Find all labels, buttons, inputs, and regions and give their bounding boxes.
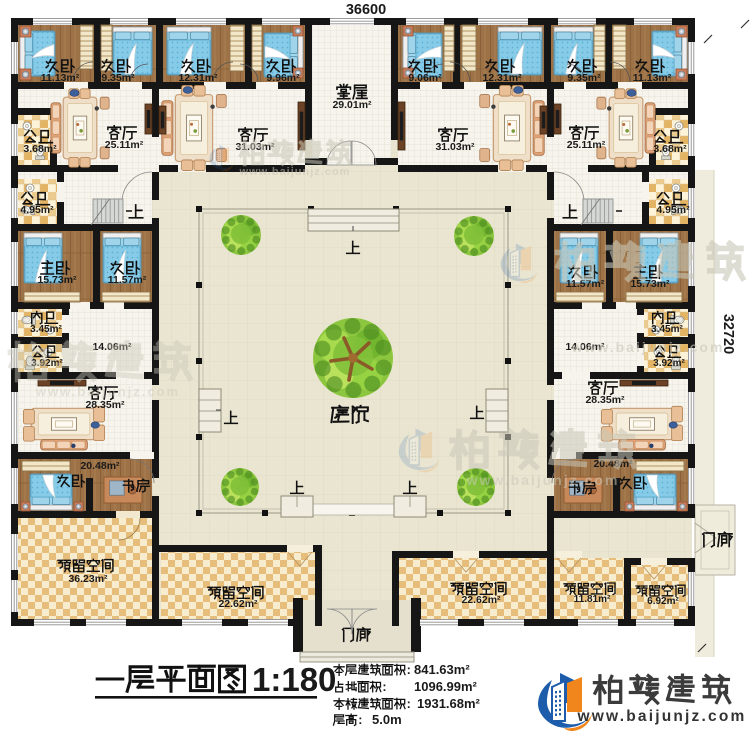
svg-text:31.03m²: 31.03m²	[435, 141, 475, 153]
svg-text:15.73m²: 15.73m²	[37, 274, 77, 286]
svg-text:5.0m: 5.0m	[372, 712, 402, 727]
svg-text:28.35m²: 28.35m²	[585, 394, 625, 406]
svg-text:20.48m²: 20.48m²	[80, 460, 120, 472]
svg-text:36.23m²: 36.23m²	[68, 573, 108, 585]
svg-text::: :	[358, 713, 362, 727]
svg-text:4.95m²: 4.95m²	[20, 204, 54, 216]
svg-text:9.35m²: 9.35m²	[567, 72, 601, 84]
svg-text:3.45m²: 3.45m²	[30, 324, 62, 335]
svg-text:29.01m²: 29.01m²	[332, 99, 372, 111]
svg-text:22.62m²: 22.62m²	[218, 598, 258, 610]
svg-text:841.63m²: 841.63m²	[414, 662, 470, 677]
svg-text:11.13m²: 11.13m²	[41, 72, 80, 84]
svg-text:11.13m²: 11.13m²	[633, 72, 672, 84]
svg-text:1:180: 1:180	[252, 661, 336, 698]
svg-text:www.baijunjz.com: www.baijunjz.com	[577, 708, 747, 725]
svg-text:9.96m²: 9.96m²	[266, 72, 300, 84]
svg-text:3.45m²: 3.45m²	[651, 324, 683, 335]
svg-text:1931.68m²: 1931.68m²	[417, 696, 481, 711]
svg-text:www.baijunjz.com: www.baijunjz.com	[35, 384, 180, 399]
svg-text:6.92m²: 6.92m²	[647, 596, 679, 607]
svg-text:25.11m²: 25.11m²	[105, 139, 144, 151]
svg-text:www.baijunjz.com: www.baijunjz.com	[239, 166, 351, 178]
svg-text:www.baijunjz.com: www.baijunjz.com	[571, 339, 725, 355]
svg-text:9.35m²: 9.35m²	[101, 72, 135, 84]
svg-text:3.68m²: 3.68m²	[653, 143, 687, 155]
svg-text::: :	[382, 680, 386, 694]
svg-text:28.35m²: 28.35m²	[85, 399, 125, 411]
svg-text::: :	[407, 697, 411, 711]
svg-text::: :	[407, 663, 411, 677]
svg-text:12.31m²: 12.31m²	[482, 72, 522, 84]
svg-text:12.31m²: 12.31m²	[178, 72, 218, 84]
svg-text:15.73m²: 15.73m²	[630, 278, 670, 290]
svg-text:11.57m²: 11.57m²	[108, 274, 147, 286]
svg-text:www.baijunjz.com: www.baijunjz.com	[466, 472, 620, 488]
svg-text:22.62m²: 22.62m²	[461, 594, 501, 606]
svg-text:4.95m²: 4.95m²	[656, 204, 690, 216]
svg-text:3.68m²: 3.68m²	[23, 143, 57, 155]
svg-text:25.11m²: 25.11m²	[567, 139, 606, 151]
svg-text:11.81m²: 11.81m²	[574, 594, 611, 605]
svg-text:1096.99m²: 1096.99m²	[414, 679, 478, 694]
svg-text:3.92m²: 3.92m²	[653, 358, 685, 369]
svg-text:9.06m²: 9.06m²	[408, 72, 442, 84]
svg-text:36600: 36600	[346, 2, 386, 18]
